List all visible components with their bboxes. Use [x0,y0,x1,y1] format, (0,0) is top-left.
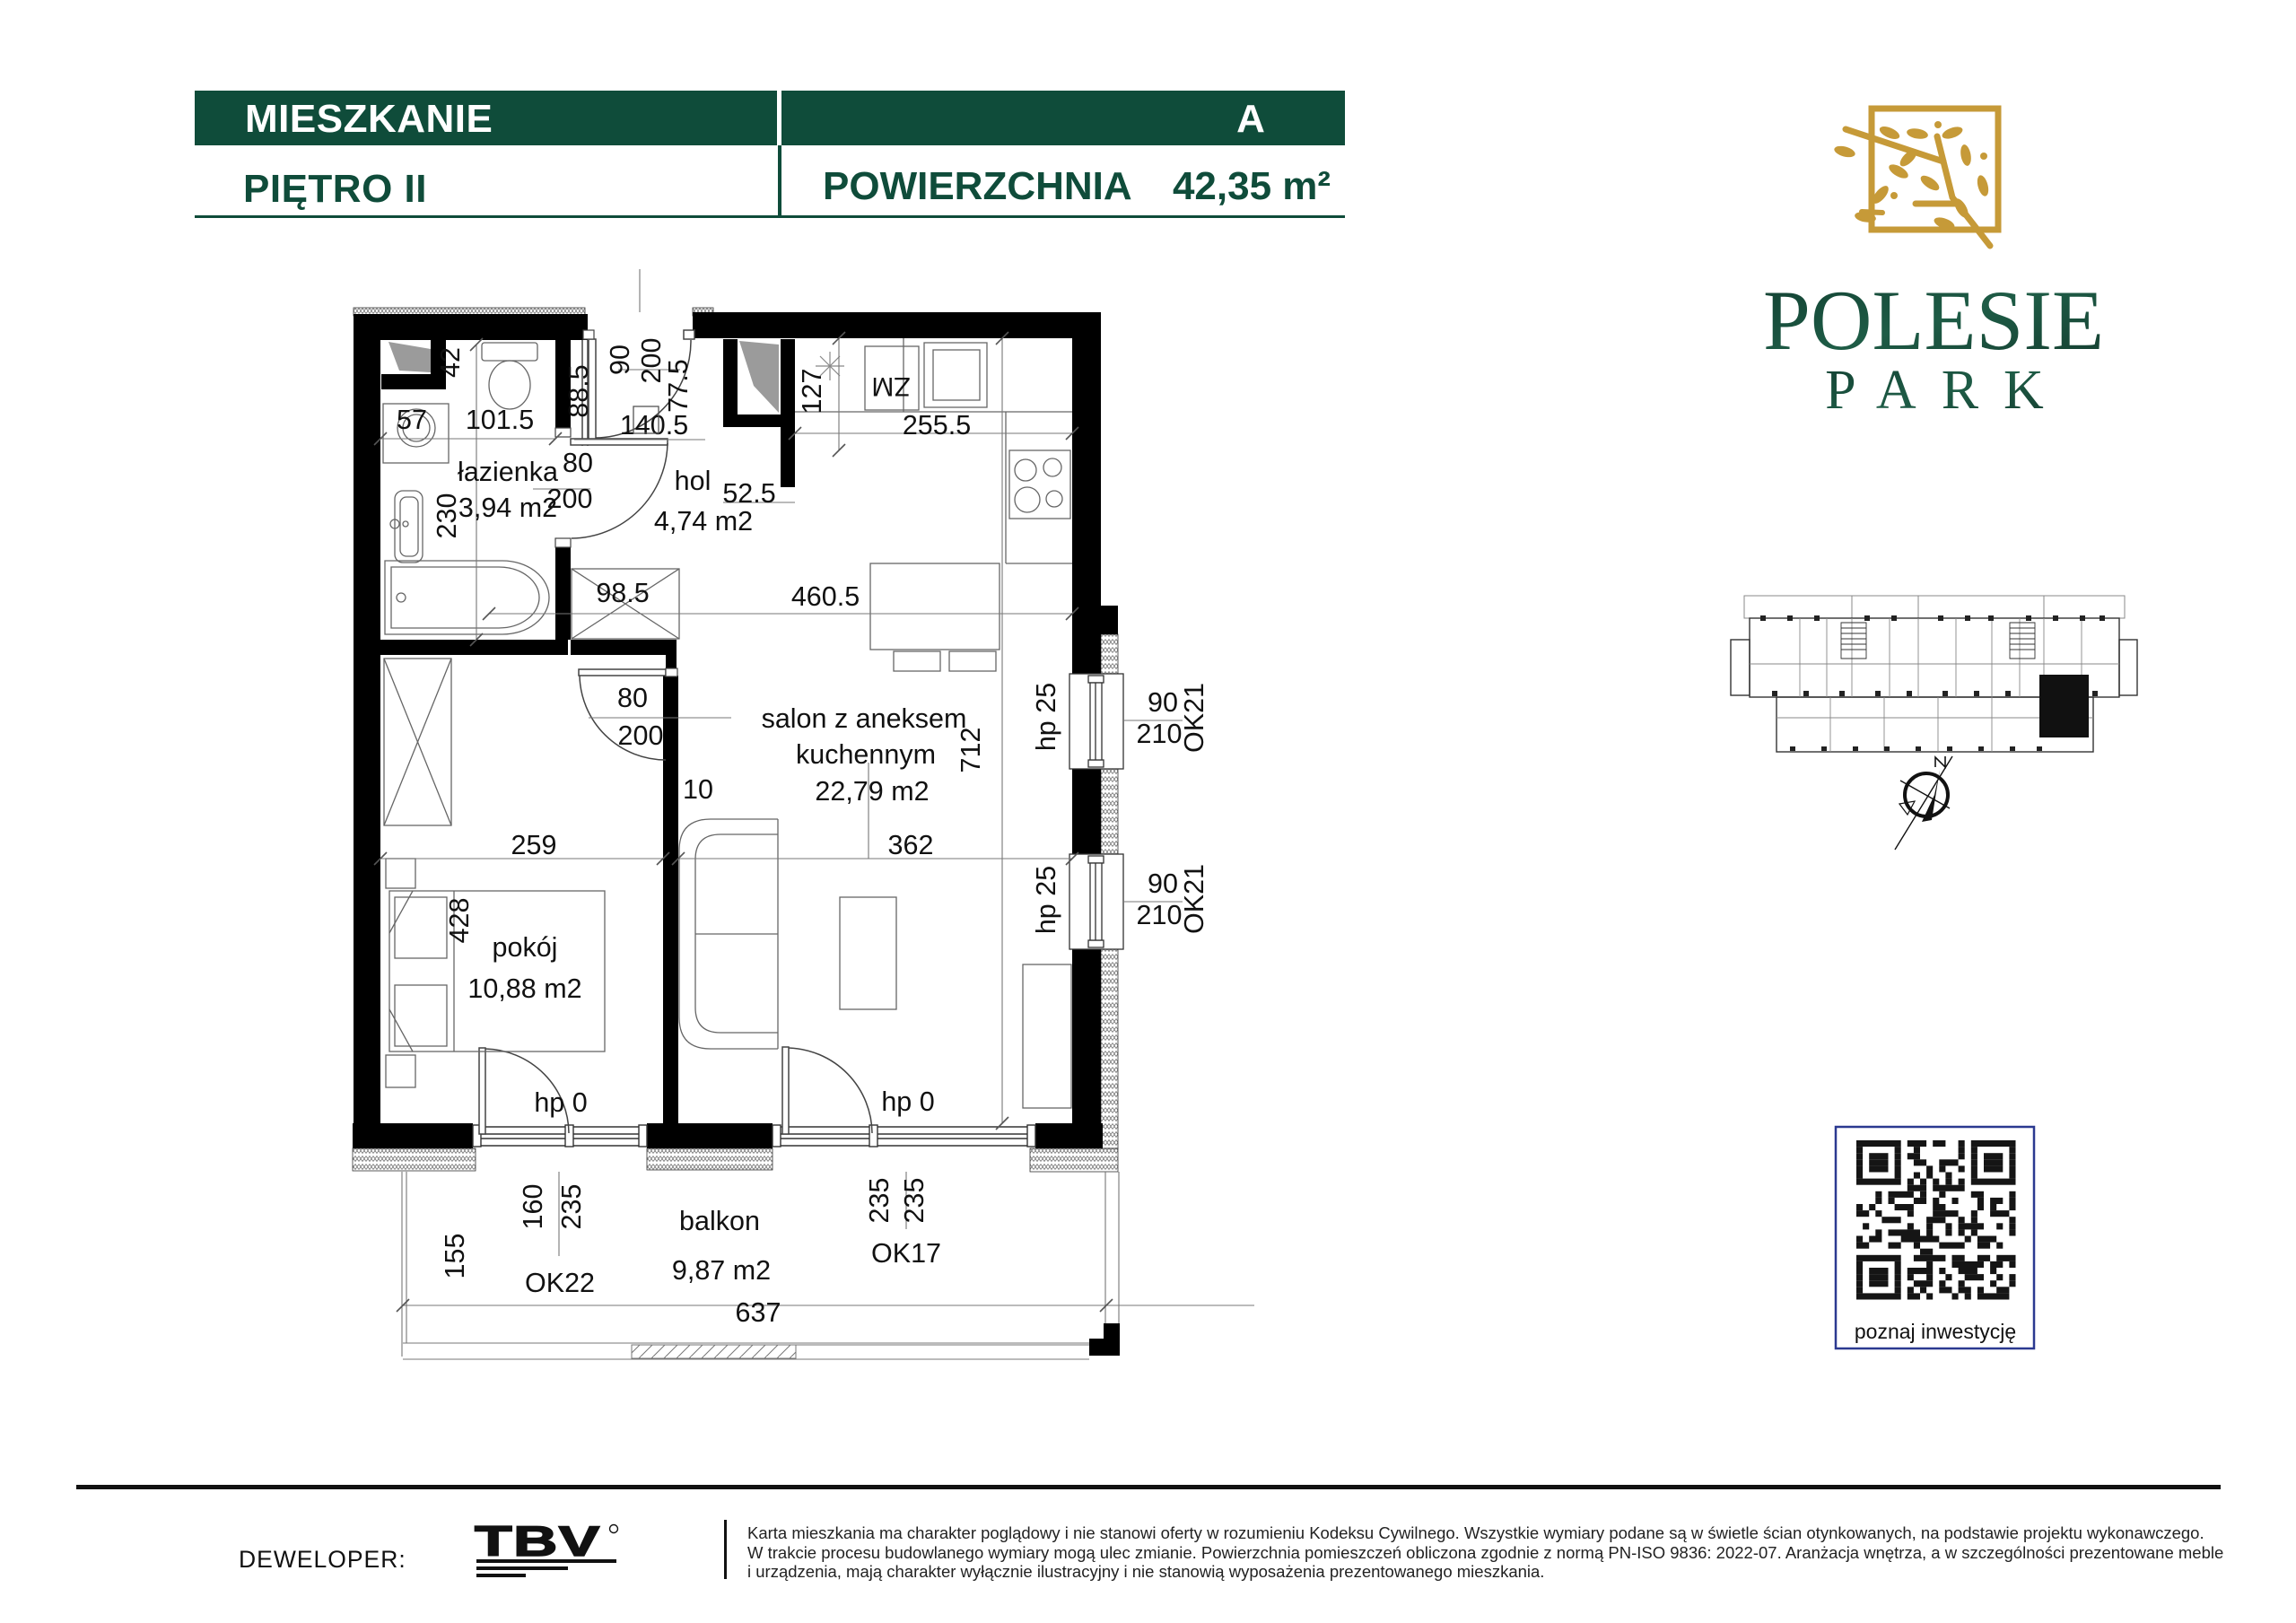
svg-text:230: 230 [432,493,462,539]
svg-text:ZM: ZM [871,371,910,401]
svg-text:77.5: 77.5 [663,359,694,412]
svg-text:10,88 m2: 10,88 m2 [467,973,581,1004]
svg-text:235: 235 [864,1178,895,1224]
svg-text:200: 200 [618,720,664,751]
svg-text:200: 200 [547,484,593,514]
svg-text:W trakcie procesu budowlanego: W trakcie procesu budowlanego wymiary mo… [747,1543,2223,1562]
svg-text:pokój: pokój [493,932,558,963]
svg-text:kuchennym: kuchennym [796,739,936,770]
svg-text:4,74 m2: 4,74 m2 [654,506,753,537]
svg-text:98.5: 98.5 [596,578,649,608]
svg-text:hp 0: hp 0 [534,1087,587,1118]
svg-text:hp 25: hp 25 [1031,866,1061,934]
svg-text:MIESZKANIE: MIESZKANIE [245,97,493,141]
svg-text:10: 10 [683,774,713,805]
svg-text:PARK: PARK [1825,360,2069,421]
svg-text:90: 90 [1148,687,1178,718]
svg-text:140.5: 140.5 [620,410,688,441]
svg-text:22,79 m2: 22,79 m2 [815,776,929,807]
svg-text:TBV: TBV [475,1518,601,1565]
svg-text:hp 0: hp 0 [881,1086,934,1117]
svg-text:Karta mieszkania ma charakter: Karta mieszkania ma charakter poglądowy … [747,1523,2204,1542]
svg-text:OK17: OK17 [871,1238,941,1269]
svg-text:42,35 m²: 42,35 m² [1173,164,1331,208]
svg-text:259: 259 [511,830,557,860]
svg-text:637: 637 [736,1297,781,1328]
svg-text:80: 80 [617,683,648,713]
svg-text:57: 57 [397,405,427,435]
svg-text:101.5: 101.5 [466,405,534,435]
svg-text:i urządzenia, mają charakter w: i urządzenia, mają charakter wyłącznie i… [747,1562,1544,1581]
svg-text:210: 210 [1137,719,1183,749]
svg-text:salon z aneksem: salon z aneksem [762,703,967,734]
svg-text:80: 80 [563,448,593,478]
svg-text:9,87 m2: 9,87 m2 [672,1255,771,1286]
svg-text:210: 210 [1137,900,1183,930]
svg-text:OK22: OK22 [525,1268,595,1298]
svg-text:255.5: 255.5 [903,410,971,441]
svg-text:POLESIE: POLESIE [1763,273,2104,368]
svg-text:3,94 m2: 3,94 m2 [458,493,557,523]
svg-text:155: 155 [440,1234,470,1279]
svg-text:hp 25: hp 25 [1031,683,1061,751]
svg-text:88.5: 88.5 [563,364,594,417]
svg-text:52.5: 52.5 [722,478,775,509]
svg-text:42: 42 [435,347,466,378]
svg-text:90: 90 [605,345,635,375]
svg-text:428: 428 [444,898,475,944]
svg-text:poznaj inwestycję: poznaj inwestycję [1855,1320,2016,1343]
svg-text:balkon: balkon [679,1206,760,1236]
svg-text:127: 127 [797,369,827,414]
svg-text:200: 200 [636,338,667,384]
svg-text:hol: hol [675,466,711,496]
svg-text:łazienka: łazienka [458,457,558,487]
svg-text:90: 90 [1148,868,1178,899]
svg-text:160: 160 [518,1184,548,1230]
svg-text:OK21: OK21 [1179,864,1209,934]
svg-text:POWIERZCHNIA: POWIERZCHNIA [823,164,1132,208]
svg-text:235: 235 [556,1184,587,1230]
svg-text:DEWELOPER:: DEWELOPER: [239,1546,406,1573]
svg-text:235: 235 [899,1178,930,1224]
svg-text:362: 362 [888,830,934,860]
svg-text:712: 712 [956,728,986,773]
svg-text:PIĘTRO II: PIĘTRO II [243,167,427,211]
svg-text:A: A [1236,97,1265,141]
svg-text:460.5: 460.5 [791,581,860,612]
svg-text:OK21: OK21 [1179,683,1209,753]
